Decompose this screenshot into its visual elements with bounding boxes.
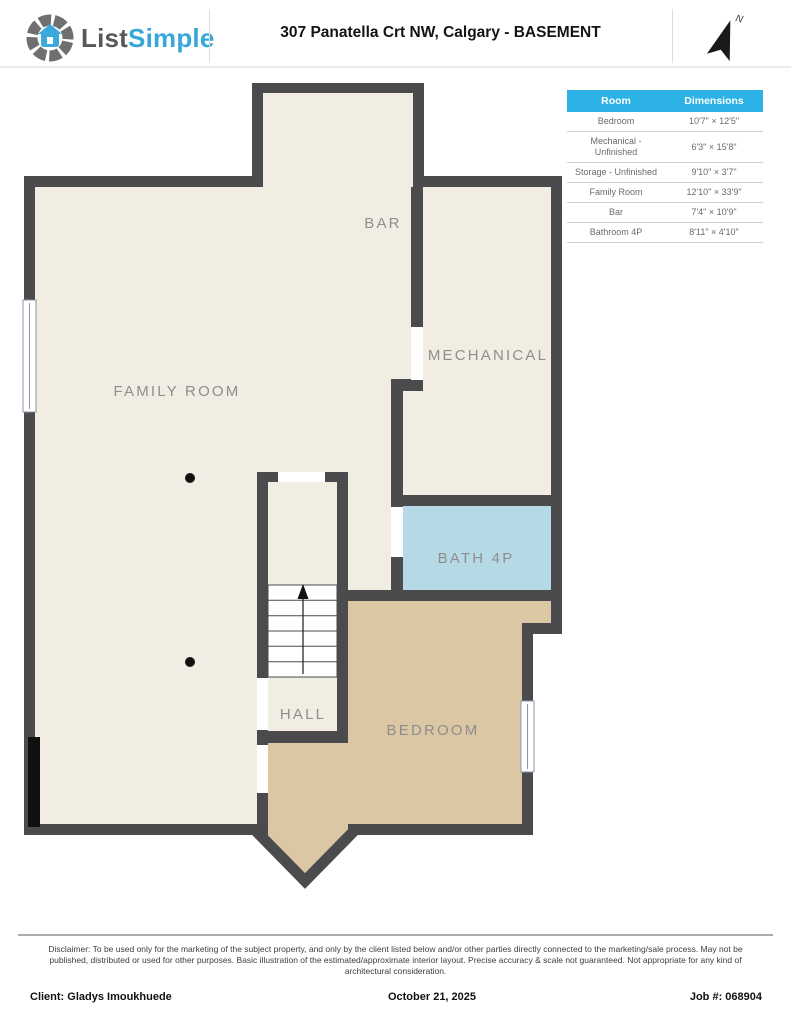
job-number: Job #: 068904 xyxy=(690,991,762,1003)
table-header-room: Room xyxy=(567,95,665,108)
column-dot xyxy=(185,473,195,483)
wall-feature-strip xyxy=(28,737,40,827)
footer-rule xyxy=(18,934,773,936)
table-cell-room: Bedroom xyxy=(567,115,665,128)
table-header-row: Room Dimensions xyxy=(567,90,763,112)
dimensions-table: Room Dimensions Bedroom 10'7" × 12'5" Me… xyxy=(567,90,763,243)
door-opening-bedroom xyxy=(257,745,268,793)
door-opening-mechanical xyxy=(411,327,423,380)
flyer-page: ListSimple 307 Panatella Crt NW, Calgary… xyxy=(0,0,791,1024)
column-dot xyxy=(185,657,195,667)
table-row: Storage - Unfinished 9'10" × 3'7" xyxy=(567,163,763,183)
door-opening-hall xyxy=(257,678,268,730)
table-cell-dims: 9'10" × 3'7" xyxy=(665,166,763,179)
window-icon-bedroom xyxy=(521,701,534,772)
table-cell-dims: 7'4" × 10'9" xyxy=(665,206,763,219)
footer-info-row: Client: Gladys Imoukhuede October 21, 20… xyxy=(0,991,791,1007)
table-row: Mechanical - Unfinished 6'3" × 15'8" xyxy=(567,132,763,163)
table-row: Bathroom 4P 8'11" × 4'10" xyxy=(567,223,763,243)
room-floor-bar xyxy=(256,90,420,190)
room-label-bar: BAR xyxy=(364,215,401,232)
stair-opening xyxy=(278,472,325,482)
table-cell-room: Bar xyxy=(567,206,665,219)
table-cell-room: Family Room xyxy=(567,186,665,199)
table-cell-room: Storage - Unfinished xyxy=(567,166,665,179)
table-row: Bar 7'4" × 10'9" xyxy=(567,203,763,223)
room-label-bath-4p: BATH 4P xyxy=(438,550,515,567)
table-header-dimensions: Dimensions xyxy=(665,95,763,108)
table-cell-dims: 8'11" × 4'10" xyxy=(665,226,763,239)
table-cell-room: Bathroom 4P xyxy=(567,226,665,239)
room-label-mechanical: MECHANICAL xyxy=(428,347,548,364)
stairs xyxy=(268,584,337,677)
room-floor-bath-4p xyxy=(397,500,554,595)
room-label-family-room: FAMILY ROOM xyxy=(114,383,241,400)
room-label-bedroom: BEDROOM xyxy=(387,722,480,739)
disclaimer-text: Disclaimer: To be used only for the mark… xyxy=(31,944,761,977)
room-label-hall: HALL xyxy=(280,706,326,723)
floor-fills xyxy=(29,90,556,886)
room-floor-mechanical xyxy=(418,185,555,500)
table-cell-dims: 12'10" × 33'9" xyxy=(665,186,763,199)
table-cell-dims: 10'7" × 12'5" xyxy=(665,115,763,128)
client-name: Client: Gladys Imoukhuede xyxy=(30,991,172,1003)
table-row: Family Room 12'10" × 33'9" xyxy=(567,183,763,203)
table-cell-room: Mechanical - Unfinished xyxy=(567,135,665,159)
table-cell-dims: 6'3" × 15'8" xyxy=(665,141,763,154)
door-opening-bath xyxy=(391,507,403,557)
window-icon-family-room xyxy=(23,300,36,412)
table-row: Bedroom 10'7" × 12'5" xyxy=(567,112,763,132)
document-date: October 21, 2025 xyxy=(388,991,476,1003)
